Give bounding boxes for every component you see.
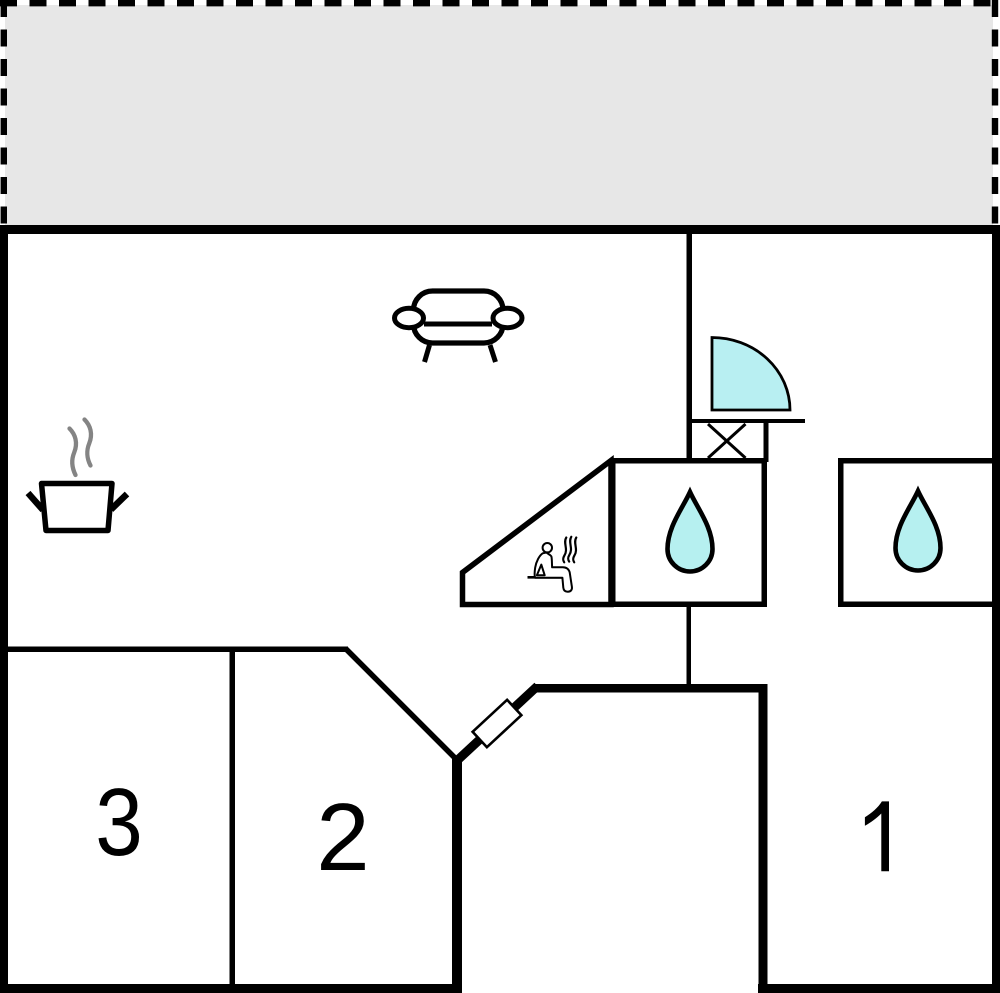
svg-text:3: 3 xyxy=(95,769,143,876)
svg-text:2: 2 xyxy=(316,784,369,891)
